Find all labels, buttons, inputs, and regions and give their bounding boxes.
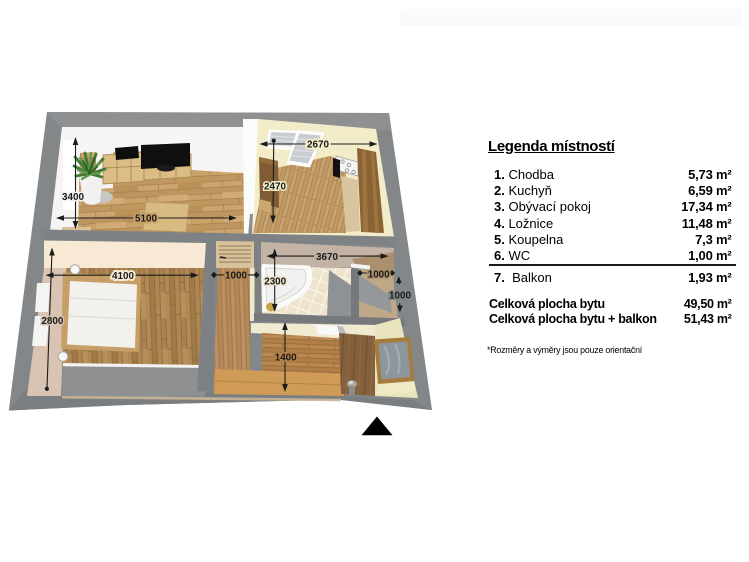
svg-text:2800: 2800: [41, 316, 63, 327]
svg-text:5100: 5100: [135, 214, 157, 225]
svg-text:2300: 2300: [264, 276, 286, 287]
svg-text:2470: 2470: [264, 181, 286, 192]
svg-text:3670: 3670: [316, 252, 338, 263]
svg-text:3400: 3400: [62, 192, 84, 203]
svg-text:1000: 1000: [389, 291, 411, 302]
svg-text:4100: 4100: [112, 271, 134, 282]
svg-text:1000: 1000: [368, 269, 390, 280]
svg-text:1000: 1000: [225, 270, 247, 281]
svg-text:2670: 2670: [307, 140, 329, 151]
svg-text:1400: 1400: [275, 352, 297, 363]
